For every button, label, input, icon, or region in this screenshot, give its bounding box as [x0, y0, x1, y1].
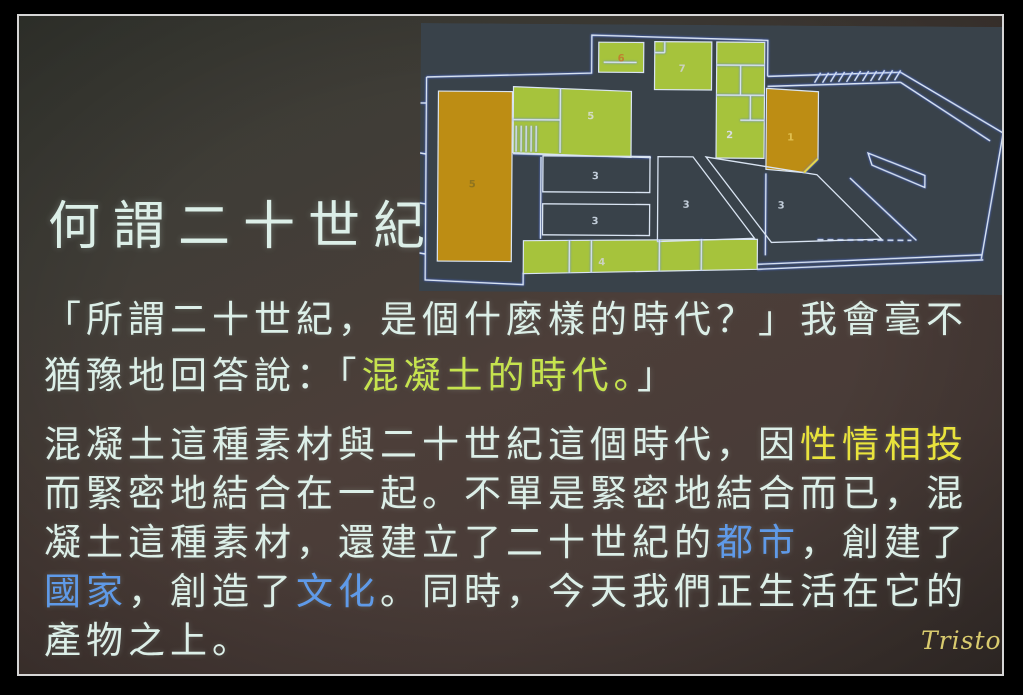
text-segment: 混凝土這種素材與二十世紀這個時代，因	[44, 423, 800, 466]
room-3-label-1: 3	[592, 171, 599, 182]
paragraph-2-line-1: 混凝土這種素材與二十世紀這個時代，因性情相投	[44, 420, 968, 469]
room-5-upper-label: 5	[587, 111, 594, 122]
photo-frame: 6 7 2 1 5 5 3 3 3 3 4 何謂二十世紀 「所謂二十世紀，是個什…	[17, 14, 1004, 676]
highlight-green-text: 混凝土的時代。	[362, 354, 638, 397]
floor-plan-drawing: 6 7 2 1 5 5 3 3 3 3 4	[419, 23, 1004, 295]
room-6-label: 6	[618, 53, 625, 64]
room-1-label: 1	[787, 133, 794, 144]
watermark: Triston	[921, 626, 1004, 655]
text-segment: 」	[637, 354, 679, 397]
highlight-blue-text: 都市	[716, 521, 800, 564]
floor-plan: 6 7 2 1 5 5 3 3 3 3 4	[420, 25, 1004, 293]
room-5-left	[437, 91, 512, 262]
text-segment: 猶豫地回答說：「	[44, 354, 362, 397]
text-segment: ，創造了	[128, 570, 296, 613]
text-segment: 「所謂二十世紀，是個什麼樣的時代？」我會毫不	[44, 298, 968, 341]
room-4-label: 4	[598, 257, 605, 268]
paragraph-1: 「所謂二十世紀，是個什麼樣的時代？」我會毫不 猶豫地回答說：「混凝土的時代。」	[44, 292, 968, 404]
paragraph-2: 混凝土這種素材與二十世紀這個時代，因性情相投 而緊密地結合在一起。不單是緊密地結…	[44, 420, 968, 665]
room-3-label-3: 3	[683, 200, 690, 211]
room-2	[716, 42, 765, 158]
paragraph-2-line-2: 而緊密地結合在一起。不單是緊密地結合而已，混	[44, 469, 968, 518]
text-segment: ，創建了	[800, 521, 968, 564]
highlight-blue-text: 國家	[44, 570, 128, 613]
room-4	[523, 238, 757, 276]
room-7-label: 7	[679, 64, 686, 75]
page-title: 何謂二十世紀	[48, 184, 438, 259]
paragraph-1-line-2: 猶豫地回答說：「混凝土的時代。」	[44, 348, 968, 404]
text-segment: 產物之上。	[44, 619, 254, 662]
paragraph-2-line-4: 國家，創造了文化。同時，今天我們正生活在它的	[44, 567, 968, 616]
paragraph-2-line-5: 產物之上。	[44, 616, 968, 665]
room-1	[766, 88, 819, 172]
room-2-label: 2	[726, 130, 733, 141]
highlight-blue-text: 文化	[296, 570, 380, 613]
paragraph-2-line-3: 凝土這種素材，還建立了二十世紀的都市，創建了	[44, 518, 968, 567]
room-5-left-label: 5	[469, 179, 476, 190]
text-segment: 。同時，今天我們正生活在它的	[380, 570, 968, 613]
room-3-label-2: 3	[592, 216, 599, 227]
room-3-label-4: 3	[778, 200, 785, 211]
text-segment: 而緊密地結合在一起。不單是緊密地結合而已，混	[44, 472, 968, 515]
text-segment: 凝土這種素材，還建立了二十世紀的	[44, 521, 716, 564]
highlight-yellow-text: 性情相投	[800, 423, 968, 466]
paragraph-1-line-1: 「所謂二十世紀，是個什麼樣的時代？」我會毫不	[44, 292, 968, 348]
